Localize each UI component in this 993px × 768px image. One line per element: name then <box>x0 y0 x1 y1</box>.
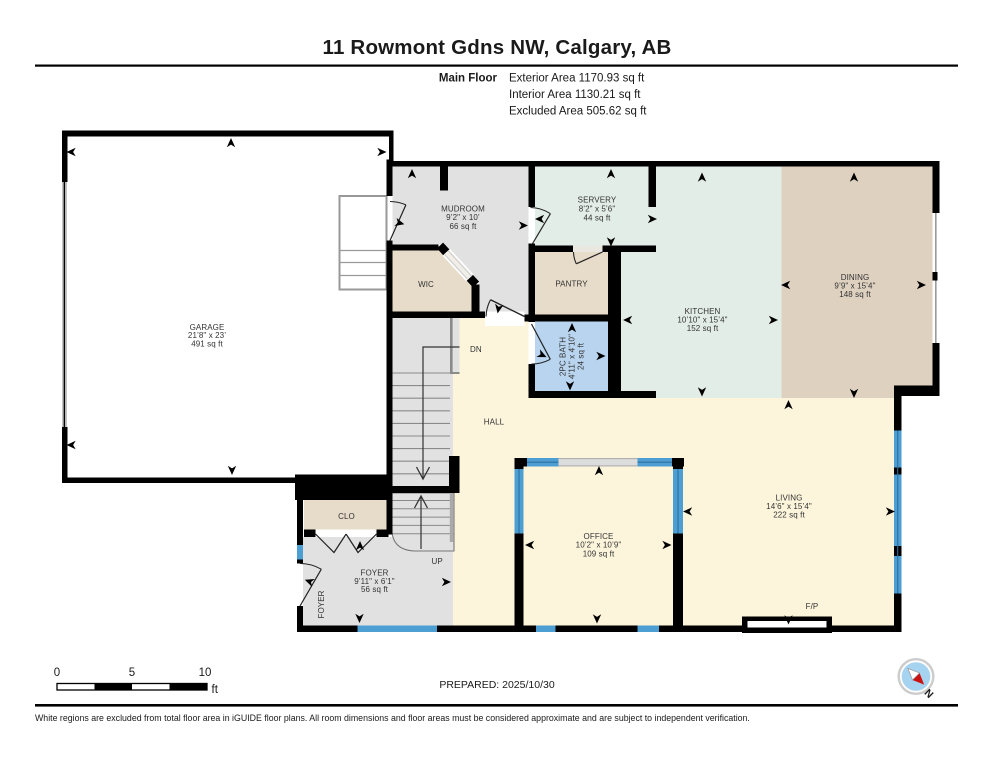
svg-text:Exterior Area 1170.93 sq ft: Exterior Area 1170.93 sq ft <box>509 73 645 85</box>
svg-text:66 sq ft: 66 sq ft <box>449 222 477 231</box>
svg-text:CLO: CLO <box>338 512 355 521</box>
svg-text:PREPARED: 2025/10/30: PREPARED: 2025/10/30 <box>439 679 555 691</box>
svg-text:WIC: WIC <box>418 280 434 289</box>
svg-text:4’11" x 4’10": 4’11" x 4’10" <box>568 334 577 379</box>
svg-text:OFFICE: OFFICE <box>584 532 614 541</box>
svg-text:SERVERY: SERVERY <box>578 196 617 205</box>
svg-text:MUDROOM: MUDROOM <box>441 205 485 214</box>
svg-text:Excluded Area 505.62 sq ft: Excluded Area 505.62 sq ft <box>509 106 647 118</box>
svg-text:PANTRY: PANTRY <box>555 280 588 289</box>
svg-text:491 sq ft: 491 sq ft <box>191 340 223 349</box>
svg-text:White regions are excluded fro: White regions are excluded from total fl… <box>35 713 750 723</box>
svg-text:8’2" x 5’6": 8’2" x 5’6" <box>579 204 616 213</box>
svg-text:F/P: F/P <box>806 602 819 611</box>
svg-text:152 sq ft: 152 sq ft <box>687 324 719 333</box>
svg-text:44 sq ft: 44 sq ft <box>583 213 611 222</box>
svg-text:10: 10 <box>199 667 212 679</box>
svg-text:FOYER: FOYER <box>317 590 326 618</box>
svg-text:148 sq ft: 148 sq ft <box>839 290 871 299</box>
svg-text:0: 0 <box>54 667 60 679</box>
svg-text:ft: ft <box>212 684 219 696</box>
svg-text:11 Rowmont Gdns NW, Calgary, A: 11 Rowmont Gdns NW, Calgary, AB <box>322 36 671 59</box>
svg-text:222 sq ft: 222 sq ft <box>773 510 805 519</box>
svg-text:HALL: HALL <box>484 418 505 427</box>
svg-text:56 sq ft: 56 sq ft <box>361 585 389 594</box>
svg-text:5: 5 <box>129 667 135 679</box>
svg-text:2PC BATH: 2PC BATH <box>559 337 568 376</box>
svg-text:9’2" x 10’: 9’2" x 10’ <box>446 213 480 222</box>
svg-text:24 sq ft: 24 sq ft <box>577 342 586 370</box>
svg-text:109 sq ft: 109 sq ft <box>583 549 615 558</box>
svg-text:Interior Area 1130.21 sq ft: Interior Area 1130.21 sq ft <box>509 89 641 101</box>
svg-text:DN: DN <box>470 345 482 354</box>
svg-text:Main Floor: Main Floor <box>439 73 498 85</box>
svg-text:UP: UP <box>432 557 443 566</box>
svg-text:10’2" x 10’9": 10’2" x 10’9" <box>576 541 622 550</box>
